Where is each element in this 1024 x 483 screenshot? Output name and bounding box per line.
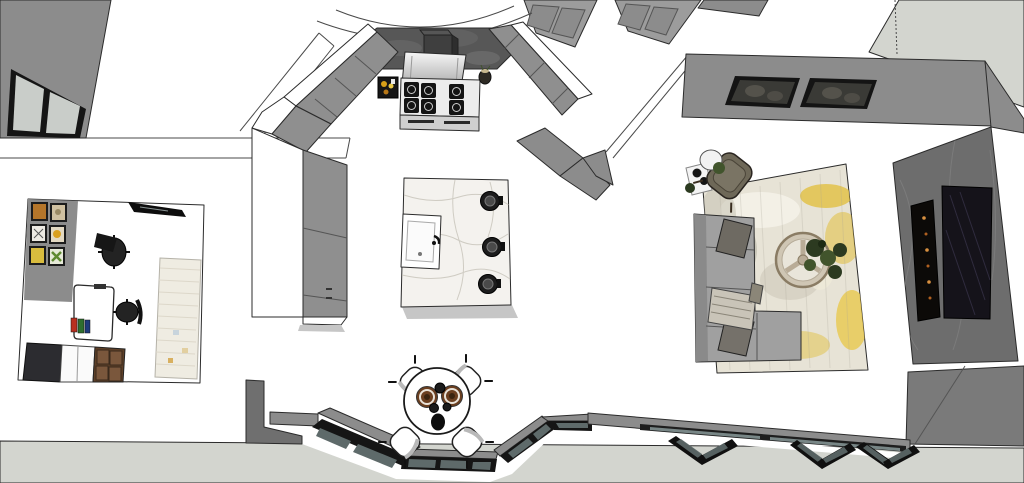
island-sink[interactable] [401, 214, 441, 269]
small-plant [685, 183, 695, 193]
black-bowl[interactable] [443, 403, 451, 411]
top-left-wall[interactable] [0, 0, 111, 138]
sofa-backrest [694, 214, 708, 362]
black-bowl[interactable] [435, 383, 445, 393]
wood-drawers[interactable] [93, 347, 125, 382]
wall-artwork[interactable] [725, 76, 800, 108]
office-room[interactable] [18, 199, 204, 383]
desk-monitor[interactable] [94, 284, 106, 289]
black-bowl[interactable] [430, 404, 439, 413]
oven-handle [408, 120, 434, 123]
marble-tv-wall[interactable] [893, 127, 1018, 364]
oven-handle [444, 121, 470, 124]
right-counter[interactable] [489, 22, 613, 200]
tv-screen[interactable] [942, 186, 992, 319]
kitchen[interactable] [252, 22, 613, 332]
small-plant [713, 162, 725, 174]
floorplan-scene[interactable] [0, 0, 1024, 483]
sink-drain [418, 252, 422, 256]
dark-cabinet[interactable] [23, 343, 62, 382]
vase[interactable] [431, 414, 445, 431]
wall-artwork[interactable] [800, 78, 877, 109]
3d-viewport[interactable] [0, 0, 1024, 483]
range-cooker[interactable] [400, 78, 480, 131]
right-lower-wall[interactable] [906, 366, 1024, 446]
white-shelf-unit[interactable] [60, 345, 95, 382]
kitchen-island[interactable] [401, 178, 518, 319]
left-counter[interactable] [252, 24, 398, 332]
pantry-cabinetry[interactable] [524, 0, 768, 47]
books[interactable] [71, 318, 90, 333]
cabinet-handle [326, 297, 332, 299]
cabinet-handle [326, 288, 332, 290]
spice-tray[interactable] [378, 77, 398, 98]
office-rug[interactable] [155, 258, 201, 379]
